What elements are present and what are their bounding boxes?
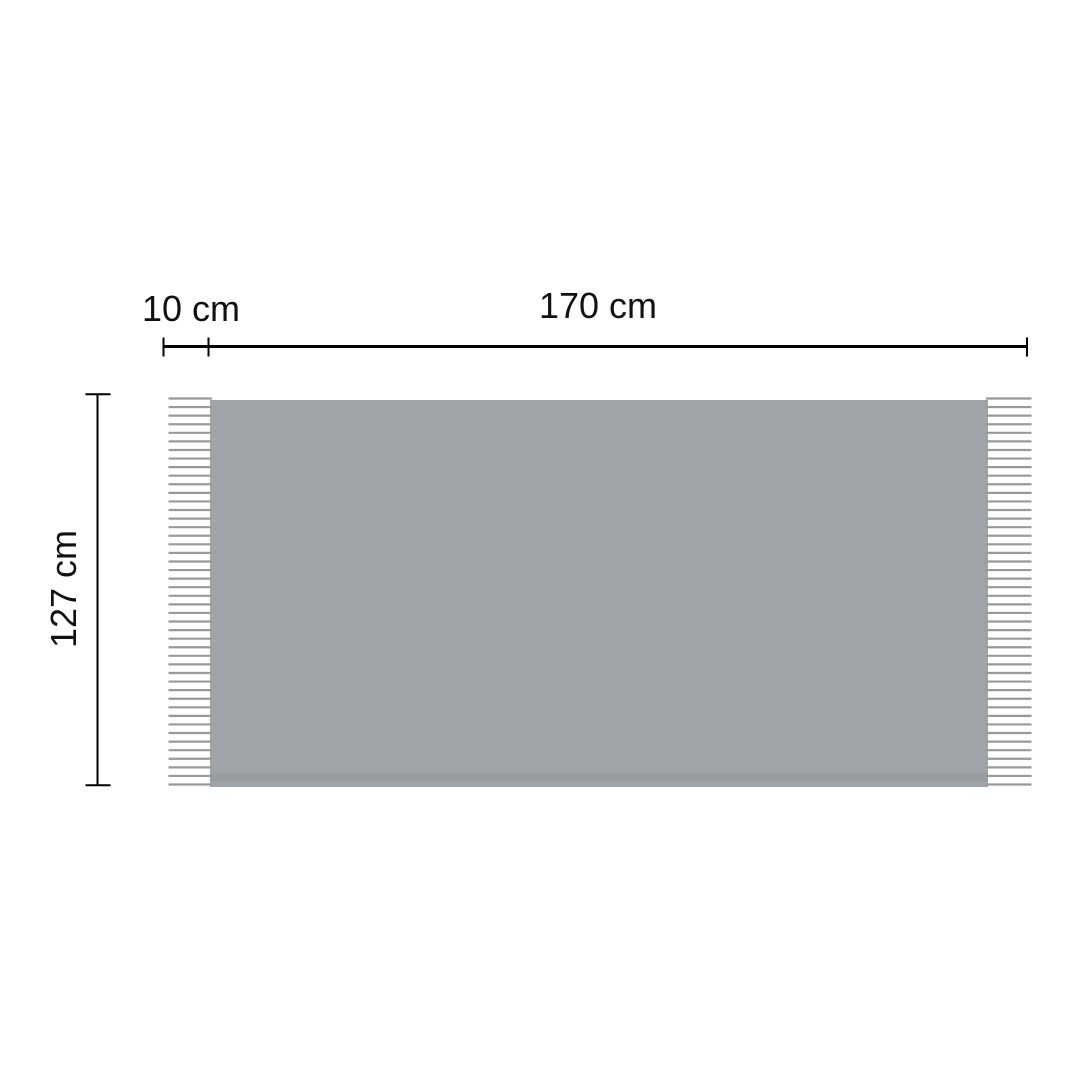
svg-text:127 cm: 127 cm — [43, 530, 84, 648]
svg-text:10 cm: 10 cm — [142, 288, 240, 329]
svg-text:170 cm: 170 cm — [539, 285, 657, 326]
